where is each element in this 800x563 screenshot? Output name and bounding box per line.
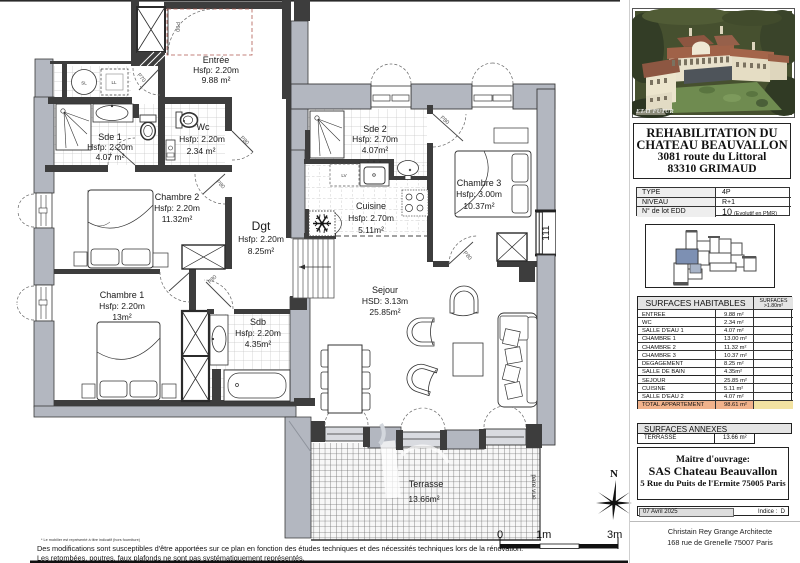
svg-text:Entrée: Entrée [203, 55, 230, 65]
svg-text:10.37m²: 10.37m² [463, 201, 494, 211]
svg-text:Hsfp: 2.20m: Hsfp: 2.20m [99, 301, 145, 311]
svg-text:Cuisine: Cuisine [356, 201, 386, 211]
svg-text:Chambre 1: Chambre 1 [100, 290, 145, 300]
svg-text:Wc: Wc [197, 122, 210, 132]
svg-text:13.66m²: 13.66m² [408, 494, 439, 504]
svg-text:8.25m²: 8.25m² [248, 246, 275, 256]
svg-text:Chambre 3: Chambre 3 [457, 178, 502, 188]
svg-text:4.07m²: 4.07m² [362, 145, 389, 155]
svg-text:Hsfp: 2.20m: Hsfp: 2.20m [154, 203, 200, 213]
svg-text:P80: P80 [215, 179, 226, 190]
svg-text:Chambre 2: Chambre 2 [155, 192, 200, 202]
svg-text:Dgt: Dgt [252, 219, 271, 233]
svg-text:HSD: 3.13m: HSD: 3.13m [362, 296, 408, 306]
svg-text:Des modifications sont suscept: Des modifications sont susceptibles d'êt… [37, 544, 523, 553]
svg-text:Hsfp: 2.20m: Hsfp: 2.20m [193, 65, 239, 75]
svg-text:5.11m²: 5.11m² [358, 225, 384, 235]
svg-text:9.88 m²: 9.88 m² [202, 75, 231, 85]
svg-text:P70: P70 [135, 72, 146, 83]
svg-text:P80: P80 [462, 250, 473, 261]
svg-text:SL: SL [81, 81, 87, 86]
svg-text:2.34 m²: 2.34 m² [187, 146, 216, 156]
svg-text:P80: P80 [439, 115, 450, 126]
svg-text:P80: P80 [239, 135, 250, 146]
svg-text:1m: 1m [536, 529, 551, 541]
svg-text:Hsfp: 2.20m: Hsfp: 2.20m [87, 142, 133, 152]
svg-text:LL: LL [111, 80, 117, 85]
svg-text:Sejour: Sejour [372, 285, 398, 295]
svg-text:111: 111 [541, 225, 552, 241]
svg-text:ETAT FUTUR: ETAT FUTUR [635, 108, 674, 115]
svg-text:Hsfp: 2.70m: Hsfp: 2.70m [348, 213, 394, 223]
svg-text:* Le mobilier est représenté à: * Le mobilier est représenté à titre ind… [41, 538, 141, 542]
svg-text:Sde 2: Sde 2 [363, 124, 387, 134]
svg-text:Hsfp: 2.20m: Hsfp: 2.20m [235, 328, 281, 338]
svg-text:P90: P90 [174, 22, 180, 32]
svg-text:Sdb: Sdb [250, 317, 266, 327]
svg-text:Hsfp: 2.70m: Hsfp: 2.70m [352, 134, 398, 144]
svg-text:Sde 1: Sde 1 [98, 132, 122, 142]
svg-text:4.35m²: 4.35m² [245, 339, 272, 349]
svg-text:4.07 m²: 4.07 m² [96, 152, 125, 162]
svg-text:13m²: 13m² [112, 312, 132, 322]
svg-text:3m: 3m [607, 529, 622, 541]
svg-text:Hsfp: 2.20m: Hsfp: 2.20m [179, 134, 225, 144]
svg-text:N: N [610, 468, 618, 480]
svg-text:Hsfp: 2.20m: Hsfp: 2.20m [238, 234, 284, 244]
svg-text:Terrasse: Terrasse [409, 479, 444, 489]
svg-text:LV: LV [341, 173, 346, 178]
svg-text:11.32m²: 11.32m² [162, 214, 193, 224]
svg-text:P80: P80 [207, 274, 218, 285]
svg-text:25.85m²: 25.85m² [369, 307, 400, 317]
svg-text:pare vue: pare vue [530, 474, 537, 500]
svg-text:Hsfp: 3.00m: Hsfp: 3.00m [456, 189, 502, 199]
